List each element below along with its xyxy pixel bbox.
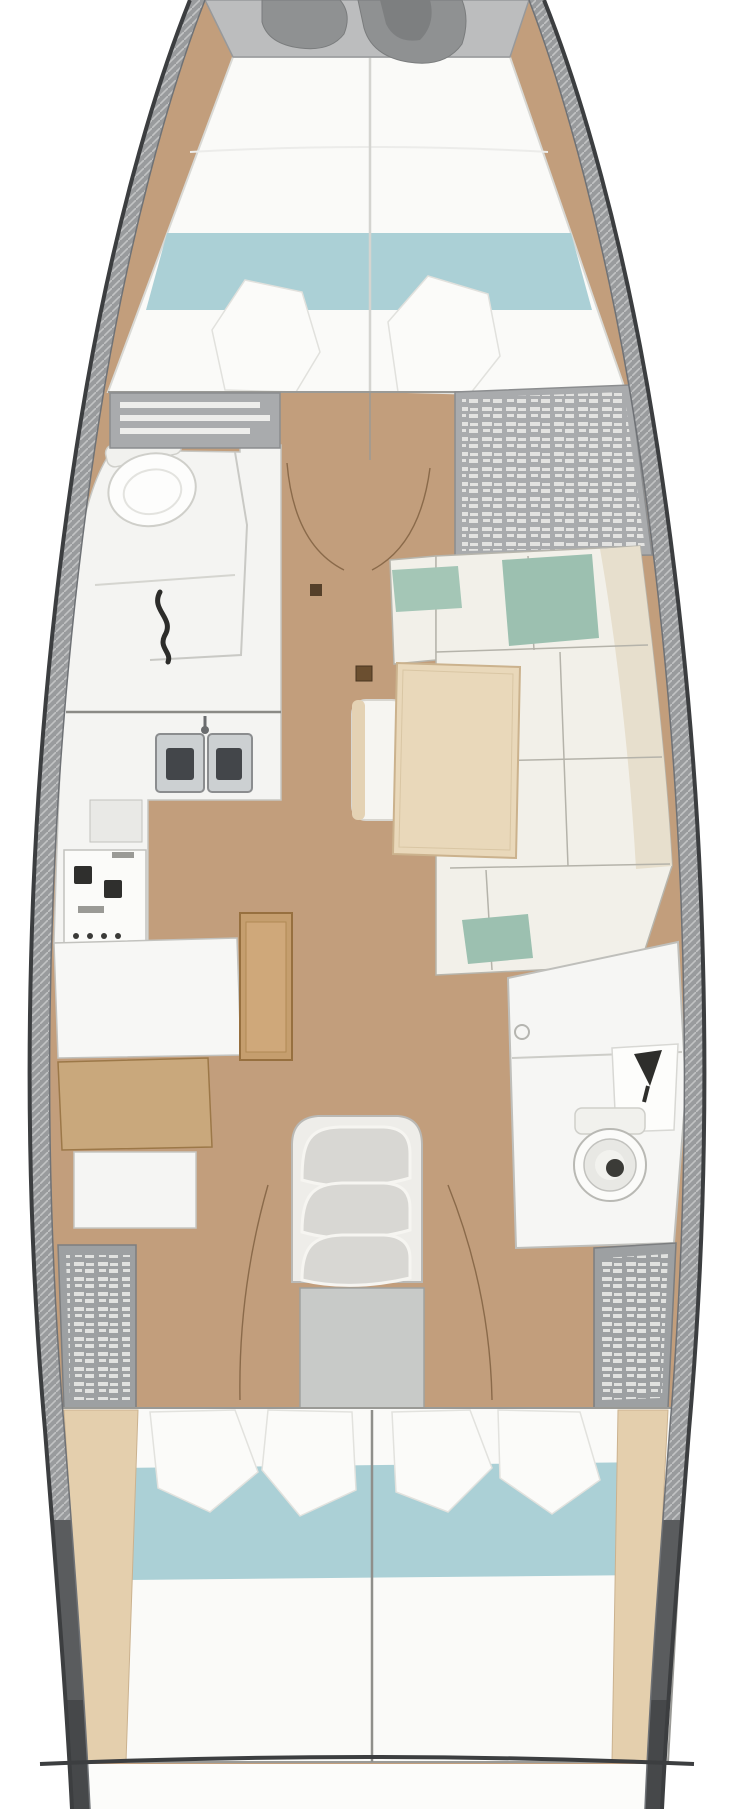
aft-locker-port <box>58 1245 136 1410</box>
stair-tread-3 <box>302 1235 410 1285</box>
yacht-floor-plan <box>0 0 733 1809</box>
toilet-aft-drain <box>606 1159 624 1177</box>
burner <box>104 880 122 898</box>
tucked-seat-trim <box>352 700 365 820</box>
wood-pillar-inner <box>246 922 286 1052</box>
aft-head <box>508 942 686 1248</box>
aft-locker-starboard <box>594 1243 676 1410</box>
floor-fitting <box>356 666 372 681</box>
bow-anchor-locker <box>205 0 529 63</box>
mast-step-mark <box>310 584 322 596</box>
aft-cabin <box>62 1408 688 1762</box>
stair-tread-1 <box>302 1127 410 1187</box>
companionway-stairs <box>292 1116 424 1412</box>
floor-plan-canvas <box>0 0 733 1809</box>
stairs-landing <box>300 1288 424 1412</box>
burner <box>74 866 92 884</box>
stair-tread-2 <box>302 1183 410 1239</box>
port-shelf-unit <box>110 393 280 448</box>
dining-table <box>393 663 520 858</box>
teal-seat-cushion-aft <box>462 914 533 964</box>
galley-control-panel <box>90 800 142 842</box>
stove <box>64 850 146 945</box>
teal-back-cushion <box>502 554 599 646</box>
stern-deck <box>66 1764 668 1809</box>
teal-seat-cushion-forward <box>392 566 462 612</box>
starboard-shelf-unit <box>455 385 652 558</box>
nav-seat-front <box>74 1152 196 1228</box>
nav-desk-top <box>54 938 241 1058</box>
chart-table-top <box>58 1058 212 1150</box>
